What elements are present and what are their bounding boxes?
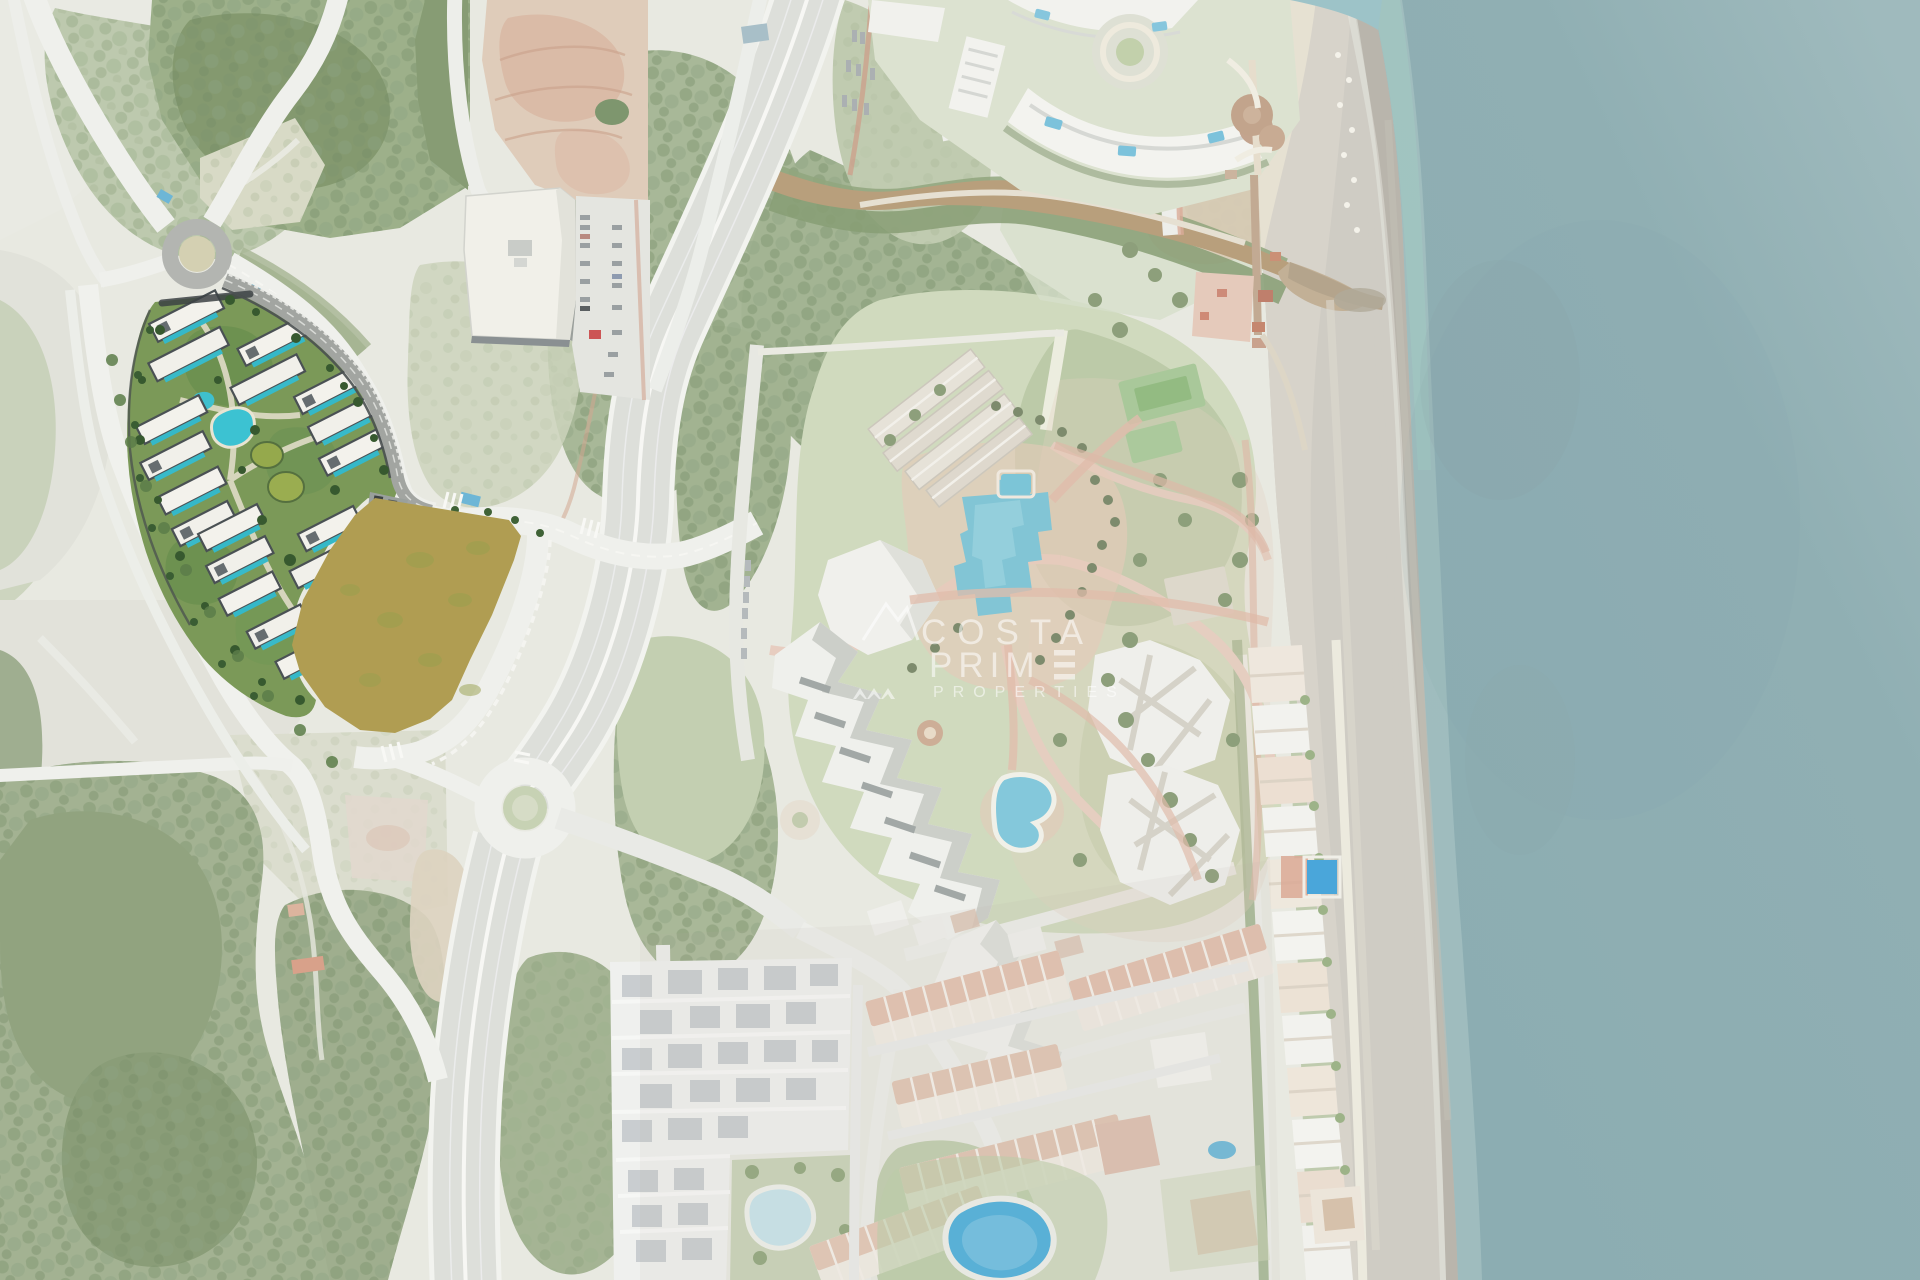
svg-text:PRIM: PRIM bbox=[929, 646, 1041, 685]
svg-text:PROPERTIES: PROPERTIES bbox=[933, 684, 1126, 701]
